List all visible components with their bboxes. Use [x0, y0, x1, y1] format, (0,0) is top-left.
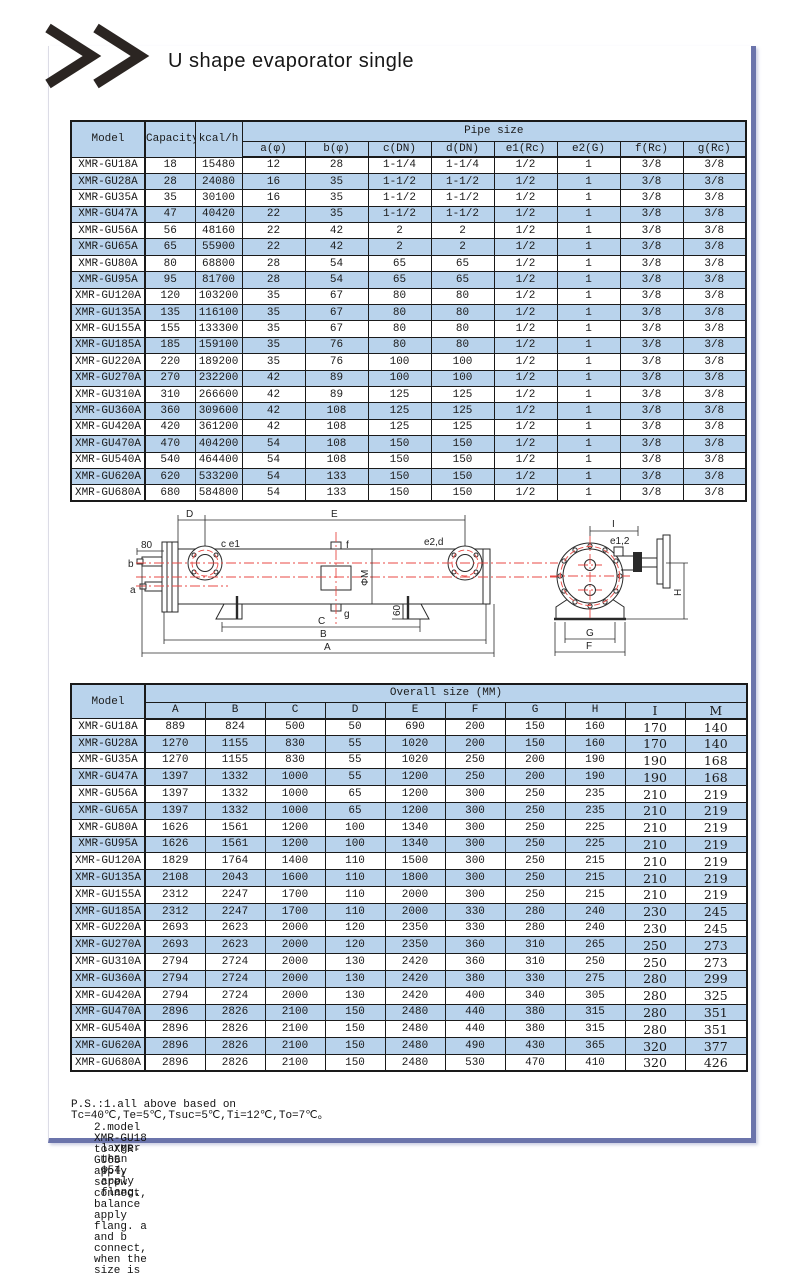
- value-cell: 1200: [385, 802, 445, 819]
- col-header-overall-size: Overall size (MM): [145, 684, 747, 702]
- model-cell: XMR-GU47A: [71, 206, 145, 222]
- value-cell: 150: [325, 1004, 385, 1021]
- model-cell: XMR-GU270A: [71, 370, 145, 386]
- value-cell: 1: [557, 223, 620, 239]
- value-cell: 309600: [195, 403, 242, 419]
- value-cell: 1000: [265, 786, 325, 803]
- value-cell: 54: [242, 468, 305, 484]
- value-cell: 190: [565, 769, 625, 786]
- value-cell: 470: [505, 1054, 565, 1071]
- value-cell: 250: [505, 886, 565, 903]
- value-cell: 1-1/4: [368, 157, 431, 173]
- value-cell: 1/2: [494, 452, 557, 468]
- model-cell: XMR-GU65A: [71, 802, 145, 819]
- value-cell: 110: [325, 870, 385, 887]
- model-cell: XMR-GU95A: [71, 272, 145, 288]
- label-c-e1: c e1: [221, 539, 240, 550]
- table-row: XMR-GU28A1270115583055102020015016017014…: [71, 735, 747, 752]
- value-cell: 120: [325, 920, 385, 937]
- value-cell: 3/8: [683, 190, 746, 206]
- dim-E-label: E: [331, 509, 338, 520]
- model-cell: XMR-GU360A: [71, 970, 145, 987]
- value-cell: 3/8: [620, 436, 683, 452]
- value-cell: 1561: [205, 836, 265, 853]
- dim-C-label: C: [318, 616, 325, 627]
- value-cell: 426: [685, 1054, 747, 1071]
- model-cell: XMR-GU120A: [71, 853, 145, 870]
- value-cell: 28: [242, 255, 305, 271]
- value-cell: 245: [685, 903, 747, 920]
- value-cell: 1-1/2: [431, 206, 494, 222]
- value-cell: 95: [145, 272, 195, 288]
- value-cell: 305: [565, 987, 625, 1004]
- value-cell: 1/2: [494, 436, 557, 452]
- value-cell: 2826: [205, 1038, 265, 1055]
- value-cell: 2247: [205, 903, 265, 920]
- value-cell: 89: [305, 386, 368, 402]
- table-row: XMR-GU540A540464400541081501501/213/83/8: [71, 452, 746, 468]
- value-cell: 3/8: [620, 354, 683, 370]
- value-cell: 170: [625, 735, 685, 752]
- value-cell: 240: [565, 920, 625, 937]
- col-header-F: F: [445, 702, 505, 719]
- value-cell: 325: [685, 987, 747, 1004]
- table-row: XMR-GU420A279427242000130242040034030528…: [71, 987, 747, 1004]
- value-cell: 133: [305, 485, 368, 501]
- value-cell: 360: [145, 403, 195, 419]
- footnote-line-3: larger than Φ54, apply flang.: [101, 1144, 141, 1199]
- value-cell: 65: [145, 239, 195, 255]
- value-cell: 80: [145, 255, 195, 271]
- value-cell: 68800: [195, 255, 242, 271]
- value-cell: 2480: [385, 1021, 445, 1038]
- value-cell: 2: [431, 223, 494, 239]
- value-cell: 219: [685, 786, 747, 803]
- value-cell: 1/2: [494, 190, 557, 206]
- value-cell: 2420: [385, 954, 445, 971]
- model-cell: XMR-GU18A: [71, 157, 145, 173]
- value-cell: 1: [557, 452, 620, 468]
- value-cell: 220: [145, 354, 195, 370]
- value-cell: 1332: [205, 802, 265, 819]
- value-cell: 404200: [195, 436, 242, 452]
- value-cell: 2480: [385, 1004, 445, 1021]
- value-cell: 250: [505, 870, 565, 887]
- value-cell: 100: [368, 354, 431, 370]
- table-row: XMR-GU18A88982450050690200150160170140: [71, 719, 747, 736]
- value-cell: 533200: [195, 468, 242, 484]
- value-cell: 690: [385, 719, 445, 736]
- value-cell: 1200: [265, 836, 325, 853]
- value-cell: 3/8: [620, 272, 683, 288]
- value-cell: 215: [565, 870, 625, 887]
- model-cell: XMR-GU540A: [71, 452, 145, 468]
- value-cell: 3/8: [683, 288, 746, 304]
- value-cell: 81700: [195, 272, 242, 288]
- value-cell: 1/2: [494, 419, 557, 435]
- value-cell: 540: [145, 452, 195, 468]
- value-cell: 1/2: [494, 370, 557, 386]
- value-cell: 3/8: [683, 321, 746, 337]
- value-cell: 125: [431, 386, 494, 402]
- value-cell: 1: [557, 305, 620, 321]
- col-header-e1: e1(Rc): [494, 141, 557, 157]
- value-cell: 3/8: [620, 255, 683, 271]
- value-cell: 250: [505, 836, 565, 853]
- table-row: XMR-GU420A420361200421081251251/213/83/8: [71, 419, 746, 435]
- value-cell: 108: [305, 452, 368, 468]
- value-cell: 2480: [385, 1038, 445, 1055]
- model-cell: XMR-GU310A: [71, 386, 145, 402]
- value-cell: 2826: [205, 1054, 265, 1071]
- value-cell: 100: [431, 354, 494, 370]
- value-cell: 50: [325, 719, 385, 736]
- value-cell: 210: [625, 870, 685, 887]
- value-cell: 219: [685, 819, 747, 836]
- value-cell: 1200: [385, 769, 445, 786]
- table-row: XMR-GU28A282408016351-1/21-1/21/213/83/8: [71, 173, 746, 189]
- value-cell: 280: [505, 903, 565, 920]
- value-cell: 1-1/2: [368, 206, 431, 222]
- value-cell: 1400: [265, 853, 325, 870]
- value-cell: 55900: [195, 239, 242, 255]
- value-cell: 225: [565, 836, 625, 853]
- value-cell: 80: [431, 305, 494, 321]
- value-cell: 830: [265, 752, 325, 769]
- value-cell: 3/8: [620, 239, 683, 255]
- label-e2-d: e2,d: [424, 537, 443, 548]
- value-cell: 116100: [195, 305, 242, 321]
- model-cell: XMR-GU540A: [71, 1021, 145, 1038]
- value-cell: 89: [305, 370, 368, 386]
- table-row: XMR-GU360A360309600421081251251/213/83/8: [71, 403, 746, 419]
- value-cell: 67: [305, 321, 368, 337]
- value-cell: 440: [445, 1021, 505, 1038]
- model-cell: XMR-GU56A: [71, 786, 145, 803]
- value-cell: 250: [505, 853, 565, 870]
- value-cell: 3/8: [683, 403, 746, 419]
- value-cell: 110: [325, 886, 385, 903]
- value-cell: 300: [445, 802, 505, 819]
- value-cell: 150: [431, 485, 494, 501]
- value-cell: 1332: [205, 786, 265, 803]
- col-header-model: Model: [71, 121, 145, 157]
- value-cell: 150: [431, 468, 494, 484]
- value-cell: 28: [242, 272, 305, 288]
- value-cell: 2480: [385, 1054, 445, 1071]
- value-cell: 47: [145, 206, 195, 222]
- value-cell: 108: [305, 419, 368, 435]
- value-cell: 1-1/2: [431, 173, 494, 189]
- table-row: XMR-GU47A1397133210005512002502001901901…: [71, 769, 747, 786]
- value-cell: 2724: [205, 970, 265, 987]
- value-cell: 3/8: [683, 255, 746, 271]
- value-cell: 2693: [145, 937, 205, 954]
- value-cell: 130: [325, 987, 385, 1004]
- value-cell: 110: [325, 903, 385, 920]
- value-cell: 889: [145, 719, 205, 736]
- table-row: XMR-GU220A22018920035761001001/213/83/8: [71, 354, 746, 370]
- value-cell: 680: [145, 485, 195, 501]
- value-cell: 22: [242, 206, 305, 222]
- value-cell: 2000: [265, 954, 325, 971]
- value-cell: 2693: [145, 920, 205, 937]
- value-cell: 40420: [195, 206, 242, 222]
- profile-flange-inner: [657, 539, 663, 584]
- value-cell: 2794: [145, 970, 205, 987]
- value-cell: 500: [265, 719, 325, 736]
- dim-G-label: G: [586, 628, 594, 639]
- value-cell: 1: [557, 206, 620, 222]
- value-cell: 80: [368, 321, 431, 337]
- value-cell: 80: [368, 288, 431, 304]
- label-e12: e1,2: [610, 536, 630, 547]
- value-cell: 2420: [385, 987, 445, 1004]
- value-cell: 2826: [205, 1021, 265, 1038]
- value-cell: 1500: [385, 853, 445, 870]
- value-cell: 56: [145, 223, 195, 239]
- value-cell: 150: [368, 485, 431, 501]
- model-cell: XMR-GU135A: [71, 870, 145, 887]
- value-cell: 130: [325, 954, 385, 971]
- value-cell: 100: [325, 836, 385, 853]
- value-cell: 219: [685, 870, 747, 887]
- value-cell: 310: [505, 954, 565, 971]
- table-row: XMR-GU80A1626156112001001340300250225210…: [71, 819, 747, 836]
- value-cell: 235: [565, 786, 625, 803]
- value-cell: 1: [557, 354, 620, 370]
- model-cell: XMR-GU360A: [71, 403, 145, 419]
- value-cell: 1: [557, 436, 620, 452]
- value-cell: 300: [445, 786, 505, 803]
- value-cell: 1829: [145, 853, 205, 870]
- value-cell: 2896: [145, 1038, 205, 1055]
- value-cell: 360: [445, 937, 505, 954]
- value-cell: 35: [242, 337, 305, 353]
- value-cell: 300: [445, 836, 505, 853]
- table-row: XMR-GU35A1270115583055102025020019019016…: [71, 752, 747, 769]
- col-header-I: I: [625, 702, 685, 719]
- chevrons-icon: [40, 20, 150, 92]
- model-cell: XMR-GU310A: [71, 954, 145, 971]
- value-cell: 3/8: [683, 157, 746, 173]
- value-cell: 150: [325, 1038, 385, 1055]
- value-cell: 315: [565, 1021, 625, 1038]
- value-cell: 1/2: [494, 223, 557, 239]
- value-cell: 3/8: [683, 370, 746, 386]
- value-cell: 1340: [385, 836, 445, 853]
- value-cell: 2000: [385, 903, 445, 920]
- value-cell: 210: [625, 819, 685, 836]
- value-cell: 265: [565, 937, 625, 954]
- value-cell: 65: [431, 272, 494, 288]
- value-cell: 219: [685, 802, 747, 819]
- value-cell: 365: [565, 1038, 625, 1055]
- table-row: XMR-GU470A470404200541081501501/213/83/8: [71, 436, 746, 452]
- table-row: XMR-GU185A231222471700110200033028024023…: [71, 903, 747, 920]
- value-cell: 3/8: [620, 419, 683, 435]
- model-cell: XMR-GU120A: [71, 288, 145, 304]
- value-cell: 3/8: [620, 288, 683, 304]
- value-cell: 2100: [265, 1004, 325, 1021]
- value-cell: 219: [685, 836, 747, 853]
- value-cell: 22: [242, 239, 305, 255]
- value-cell: 1800: [385, 870, 445, 887]
- value-cell: 2100: [265, 1038, 325, 1055]
- value-cell: 1626: [145, 836, 205, 853]
- model-cell: XMR-GU135A: [71, 305, 145, 321]
- value-cell: 133300: [195, 321, 242, 337]
- value-cell: 150: [505, 735, 565, 752]
- value-cell: 340: [505, 987, 565, 1004]
- value-cell: 54: [242, 436, 305, 452]
- value-cell: 1: [557, 321, 620, 337]
- value-cell: 2: [368, 223, 431, 239]
- value-cell: 361200: [195, 419, 242, 435]
- table-row: XMR-GU470A289628262100150248044038031528…: [71, 1004, 747, 1021]
- col-header-model: Model: [71, 684, 145, 719]
- table-row: XMR-GU540A289628262100150248044038031528…: [71, 1021, 747, 1038]
- dim-60-label: 60: [392, 604, 403, 616]
- value-cell: 1332: [205, 769, 265, 786]
- value-cell: 1397: [145, 802, 205, 819]
- value-cell: 2312: [145, 886, 205, 903]
- port-e12: [614, 547, 623, 556]
- value-cell: 35: [242, 321, 305, 337]
- value-cell: 140: [685, 735, 747, 752]
- value-cell: 1: [557, 403, 620, 419]
- table-row: XMR-GU185A185159100357680801/213/83/8: [71, 337, 746, 353]
- value-cell: 215: [565, 853, 625, 870]
- value-cell: 250: [505, 786, 565, 803]
- value-cell: 65: [325, 786, 385, 803]
- table-row: XMR-GU95A9581700285465651/213/83/8: [71, 272, 746, 288]
- col-header-g: g(Rc): [683, 141, 746, 157]
- pipe-size-table-body: XMR-GU18A181548012281-1/41-1/41/213/83/8…: [71, 157, 746, 501]
- label-f: f: [346, 540, 349, 551]
- value-cell: 1: [557, 272, 620, 288]
- nozzle-b: [142, 557, 162, 566]
- value-cell: 1/2: [494, 255, 557, 271]
- value-cell: 230: [625, 903, 685, 920]
- model-cell: XMR-GU95A: [71, 836, 145, 853]
- value-cell: 1/2: [494, 321, 557, 337]
- value-cell: 120: [325, 937, 385, 954]
- dim-H-label: H: [673, 589, 684, 596]
- value-cell: 1-1/2: [431, 190, 494, 206]
- value-cell: 67: [305, 305, 368, 321]
- value-cell: 280: [625, 987, 685, 1004]
- model-cell: XMR-GU220A: [71, 920, 145, 937]
- value-cell: 1/2: [494, 485, 557, 501]
- value-cell: 130: [325, 970, 385, 987]
- label-a: a: [130, 585, 136, 596]
- value-cell: 3/8: [620, 173, 683, 189]
- value-cell: 80: [431, 321, 494, 337]
- value-cell: 273: [685, 937, 747, 954]
- value-cell: 1700: [265, 903, 325, 920]
- value-cell: 280: [625, 1021, 685, 1038]
- page-title: U shape evaporator single: [168, 50, 414, 73]
- model-cell: XMR-GU56A: [71, 223, 145, 239]
- model-cell: XMR-GU28A: [71, 735, 145, 752]
- value-cell: 35: [242, 305, 305, 321]
- value-cell: 2896: [145, 1021, 205, 1038]
- value-cell: 410: [565, 1054, 625, 1071]
- value-cell: 55: [325, 735, 385, 752]
- value-cell: 35: [242, 288, 305, 304]
- value-cell: 65: [368, 255, 431, 271]
- value-cell: 824: [205, 719, 265, 736]
- value-cell: 65: [431, 255, 494, 271]
- value-cell: 330: [445, 920, 505, 937]
- model-cell: XMR-GU185A: [71, 903, 145, 920]
- col-header-a: a(φ): [242, 141, 305, 157]
- value-cell: 280: [625, 970, 685, 987]
- value-cell: 245: [685, 920, 747, 937]
- value-cell: 1000: [265, 802, 325, 819]
- value-cell: 35: [305, 173, 368, 189]
- value-cell: 330: [445, 903, 505, 920]
- value-cell: 28: [305, 157, 368, 173]
- value-cell: 3/8: [683, 272, 746, 288]
- value-cell: 65: [368, 272, 431, 288]
- value-cell: 159100: [195, 337, 242, 353]
- pipe-size-table: Model Capacity kcal/h Pipe size a(φ) b(φ…: [70, 120, 747, 502]
- dim-F-label: F: [586, 641, 592, 652]
- value-cell: 273: [685, 954, 747, 971]
- value-cell: 150: [325, 1021, 385, 1038]
- table-row: XMR-GU680A680584800541331501501/213/83/8: [71, 485, 746, 501]
- value-cell: 210: [625, 836, 685, 853]
- value-cell: 1200: [385, 786, 445, 803]
- table-row: XMR-GU56A56481602242221/213/83/8: [71, 223, 746, 239]
- model-cell: XMR-GU155A: [71, 321, 145, 337]
- value-cell: 160: [565, 735, 625, 752]
- dim-80-label: 80: [141, 540, 153, 551]
- value-cell: 1/2: [494, 272, 557, 288]
- model-cell: XMR-GU680A: [71, 1054, 145, 1071]
- value-cell: 76: [305, 354, 368, 370]
- value-cell: 300: [445, 886, 505, 903]
- value-cell: 235: [565, 802, 625, 819]
- table-row: XMR-GU135A210820431600110180030025021521…: [71, 870, 747, 887]
- value-cell: 1-1/2: [368, 173, 431, 189]
- value-cell: 190: [565, 752, 625, 769]
- value-cell: 1200: [265, 819, 325, 836]
- value-cell: 3/8: [620, 468, 683, 484]
- col-header-H: H: [565, 702, 625, 719]
- value-cell: 440: [445, 1004, 505, 1021]
- value-cell: 1020: [385, 735, 445, 752]
- value-cell: 315: [565, 1004, 625, 1021]
- col-header-b: b(φ): [305, 141, 368, 157]
- value-cell: 170: [625, 719, 685, 736]
- overall-size-table: Model Overall size (MM) A B C D E F G H …: [70, 683, 748, 1072]
- value-cell: 185: [145, 337, 195, 353]
- value-cell: 42: [242, 403, 305, 419]
- value-cell: 42: [305, 223, 368, 239]
- value-cell: 12: [242, 157, 305, 173]
- value-cell: 54: [242, 485, 305, 501]
- value-cell: 215: [565, 886, 625, 903]
- table-row: XMR-GU56A1397133210006512003002502352102…: [71, 786, 747, 803]
- footnote-line-1: P.S.:1.all above based on Tc=40℃,Te=5℃,T…: [71, 1100, 329, 1122]
- model-cell: XMR-GU65A: [71, 239, 145, 255]
- value-cell: 1: [557, 337, 620, 353]
- overall-size-table-header: Model Overall size (MM) A B C D E F G H …: [71, 684, 747, 719]
- value-cell: 270: [145, 370, 195, 386]
